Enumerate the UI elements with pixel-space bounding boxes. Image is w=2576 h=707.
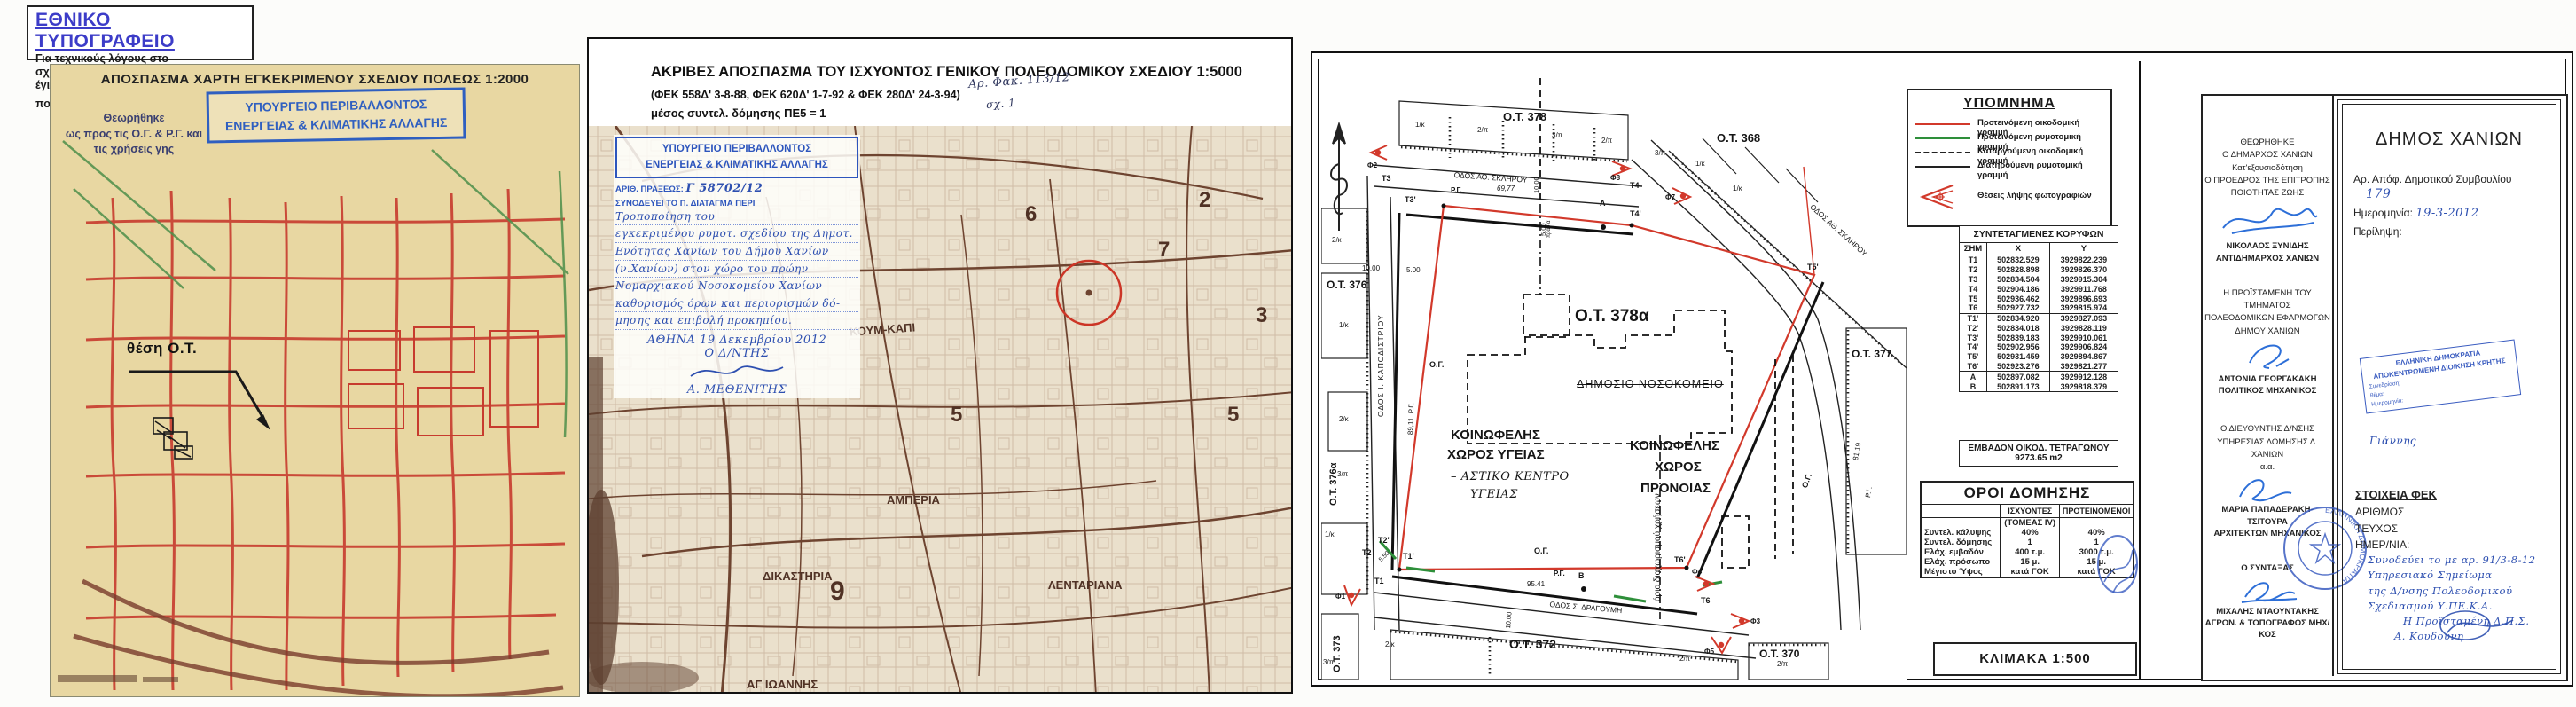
camera-icon (1917, 182, 1956, 212)
national-printing-office-box: ΕΘΝΙΚΟ ΤΥΠΟΓΡΑΦΕΙΟ Για τεχνικούς λόγους … (27, 5, 254, 60)
block-area-box: ΕΜΒΑΔΟΝ ΟΙΚΟΔ. ΤΕΤΡΑΓΩΝΟΥ 9273.65 m2 (1959, 440, 2118, 467)
municipality-box-inner: ΔΗΜΟΣ ΧΑΝΙΩΝ Αρ. Απόφ. Δημοτικού Συμβουλ… (2342, 104, 2556, 670)
table-row: Τ6'502923.2763929821.277 (1960, 362, 2118, 372)
camera-label: Φ4 (1692, 568, 1702, 576)
middle-subtitle-fek: (ΦΕΚ 558Δ' 3-8-88, ΦΕΚ 620Δ' 1-7-92 & ΦΕ… (651, 89, 960, 101)
parcel-code: 1/κ (1733, 185, 1742, 192)
table-row: Τ1502832.5293929822.239 (1960, 255, 2118, 265)
scale-box: ΚΛΙΜΑΚΑ 1:500 (1933, 642, 2137, 676)
stamp-director-role: Ο Δ/ΝΤΗΣ (615, 347, 858, 360)
date-row: Ημερομηνία: 19-3-2012 (2353, 207, 2545, 220)
legend-item: Προτεινόμενη ρυμοτομική γραμμή (1915, 131, 2103, 145)
block-label: Ο.Τ. 370 (1759, 648, 1799, 660)
dept-head-name: ΑΝΤΩΝΙΑ ΓΕΩΡΓΑΚΑΚΗ (2203, 373, 2332, 385)
dept-head-signature (2223, 340, 2312, 372)
parcel-code: 3/π (1323, 658, 1334, 666)
district-label: ΛΕΝΤΑΡΙΑΝΑ (1048, 578, 1123, 592)
printing-office-title: ΕΘΝΙΚΟ ΤΥΠΟΓΡΑΦΕΙΟ (35, 10, 245, 52)
ministry-act-stamp: ΥΠΟΥΡΓΕΙΟ ΠΕΡΙΒΑΛΛΟΝΤΟΣ ΕΝΕΡΓΕΙΑΣ & ΚΛΙΜ… (614, 135, 860, 398)
sector-number: 3 (1256, 303, 1267, 328)
panel-implementation-plan-1-500: Ο.Τ. 378 Ο.Τ. 368 Ο.Τ. 376 Ο.Τ. 376α Ο.Τ… (1311, 51, 2573, 687)
handwritten-service-note: Συνοδεύει το με αρ. 91/3-8-12 Υπηρεσιακό… (2368, 553, 2545, 645)
middle-title: ΑΚΡΙΒΕΣ ΑΠΟΣΠΑΣΜΑ ΤΟΥ ΙΣΧΥΟΝΤΟΣ ΓΕΝΙΚΟΥ … (651, 64, 1242, 81)
director-block: Ο ΔΙΕΥΘΥΝΤΗΣ Δ/ΝΣΗΣ ΥΠΗΡΕΣΙΑΣ ΔΟΜΗΣΗΣ Δ.… (2203, 423, 2332, 474)
corner-label: Τ6 (1701, 596, 1711, 605)
coords-header-row: ΣΗΜ Χ Υ (1960, 243, 2118, 255)
line-label-og: Ο.Γ. (1429, 360, 1444, 369)
director-signature (2228, 474, 2307, 504)
zone-health-handnote: – ΑΣΤΙΚΟ ΚΕΝΤΡΟ (1451, 470, 1570, 483)
zone-health-handnote: ΥΓΕΙΑΣ (1470, 488, 1518, 501)
table-row: Τ5'502931.4593929894.867 (1960, 352, 2118, 362)
corner-label: Τ3' (1405, 195, 1416, 204)
parcel-code: 3/π (1337, 470, 1348, 478)
dimension: 10.00 (1362, 264, 1380, 272)
date-value-handwritten: 19-3-2012 (2415, 207, 2478, 220)
sector-number: 6 (1025, 202, 1037, 227)
camera-label: Φ7 (1665, 193, 1675, 201)
sector-number: 7 (1158, 238, 1170, 263)
approved-note: Θεωρήθηκε ως προς τις Ο.Γ. & Ρ.Γ. και τι… (54, 111, 214, 158)
district-label: ΔΙΚΑΣΤΗΡΙΑ (763, 570, 833, 583)
blue-ink-mark (2087, 529, 2149, 600)
scanned-planning-document: ΕΘΝΙΚΟ ΤΥΠΟΓΡΑΦΕΙΟ Για τεχνικούς λόγους … (0, 0, 2576, 707)
table-row: Τ3502834.5043929915.304 (1960, 275, 2118, 285)
stamp-place-date: ΑΘΗΝΑ 19 Δεκεμβρίου 2012 (615, 334, 858, 347)
dashed-line-sample (1915, 152, 1970, 153)
legend-item: Προτεινόμενη οικοδομική γραμμή (1915, 117, 2103, 130)
parcel-code: 2/π (1679, 655, 1690, 663)
decentralized-admin-stamp: ΕΛΛΗΝΙΚΗ ΔΗΜΟΚΡΑΤΙΑ ΑΠΟΚΕΝΤΡΩΜΕΝΗ ΔΙΟΙΚΗ… (2360, 340, 2521, 414)
act-number-value: Γ 58702/12 (685, 182, 763, 195)
table-row: Τ2'502834.0183929828.119 (1960, 323, 2118, 333)
corner-label: Τ2 (1362, 548, 1372, 557)
old-hospital-label: ΔΗΜΟΣΙΟ ΝΟΣΟΚΟΜΕΙΟ (1577, 378, 1724, 390)
table-row: Τ4'502902.9563929906.824 (1960, 342, 2118, 352)
camera-label: Φ8 (1610, 174, 1620, 182)
dimension-setback-word: πρασιά (1546, 220, 1552, 238)
legend-item: Διατηρούμενη ρυμοτομική γραμμή (1915, 160, 2103, 173)
zone-health-label: ΚΟΙΝΩΦΕΛΗΣ (1451, 428, 1540, 443)
summary-label: Περίληψη: (2353, 225, 2545, 238)
coords-title: ΣΥΝΤΕΤΑΓΜΕΝΕΣ ΚΟΡΥΦΩΝ (1960, 226, 2118, 243)
plot-map: Ο.Τ. 378 Ο.Τ. 368 Ο.Τ. 376 Ο.Τ. 376α Ο.Τ… (1321, 62, 1907, 680)
corner-label: Τ5' (1807, 263, 1819, 271)
stamp-director-name: Α. ΜΕΘΕΝΙΤΗΣ (615, 383, 858, 397)
mayor-signature (2214, 201, 2321, 239)
zone-welfare-label: ΠΡΟΝΟΙΑΣ (1640, 481, 1711, 496)
legend-title: ΥΠΟΜΝΗΜΑ (1908, 96, 2110, 112)
corner-label: Α (1600, 199, 1606, 208)
corner-label: Τ2' (1378, 536, 1390, 545)
dimension: 95.41 (1527, 580, 1545, 588)
block-label: Ο.Τ. 372 (1509, 637, 1556, 651)
dept-head-block: Η ΠΡΟΪΣΤΑΜΕΝΗ ΤΟΥ ΤΜΗΜΑΤΟΣ ΠΟΛΕΟΔΟΜΙΚΩΝ … (2203, 287, 2332, 338)
signatures-column: ΘΕΩΡΗΘΗΚΕ Ο ΔΗΜΑΡΧΟΣ ΧΑΝΙΩΝ Κατ'εξουσιοδ… (2203, 96, 2332, 640)
table-row: Τ5502936.4623929896.693 (1960, 294, 2118, 303)
terms-header-row: ΙΣΧΥΟΝΤΕΣ ΠΡΟΤΕΙΝΟΜΕΝΟΙ (1922, 505, 2133, 518)
location-ot-label: θέση Ο.Τ. (127, 340, 197, 357)
block-label: Ο.Τ. 368 (1717, 131, 1760, 145)
decree-handwritten-text: Τροποποίηση του εγκεκριμένου ρυμοτ. σχεδ… (615, 208, 858, 397)
usage-boundary-label: όριο διαχωρισμού χρήσεων (1653, 493, 1663, 601)
approved-plan-map (51, 65, 579, 696)
signatures-region: ΘΕΩΡΗΘΗΚΕ Ο ΔΗΜΑΡΧΟΣ ΧΑΝΙΩΝ Κατ'εξουσιοδ… (2201, 94, 2568, 681)
dimension: 10.00 (1504, 611, 1514, 628)
legend: ΥΠΟΜΝΗΜΑ Προτεινόμενη οικοδομική γραμμή … (1907, 89, 2112, 227)
block-label: Ο.Τ. 376 (1327, 279, 1366, 291)
terms-title: ΟΡΟΙ ΔΟΜΗΣΗΣ (1922, 483, 2133, 505)
act-number-row: ΑΡΙΘ. ΠΡΑΞΕΩΣ: Γ 58702/12 (615, 182, 858, 195)
dimension: 89,11 Ρ.Γ. (1406, 403, 1415, 435)
table-row: Β502891.1733929818.379 (1960, 381, 2118, 391)
legend-camera-item: Θέσεις λήψης φωτογραφιών (1915, 182, 2103, 217)
sector-number: 5 (951, 403, 962, 428)
line-label-og: Ο.Γ. (1534, 546, 1548, 555)
block-label: Ο.Τ. 377 (1852, 348, 1891, 360)
table-row: (ΤΟΜΕΑΣ IV) (1922, 518, 2133, 529)
table-row: Τ6502927.7323929815.974 (1960, 303, 2118, 313)
camera-label: Φ5 (1704, 648, 1714, 656)
parcel-code: 2/κ (1385, 640, 1395, 648)
line-label-rg: Ρ.Γ. (1451, 186, 1462, 194)
district-label: ΑΓ ΙΩΑΝΝΗΣ (747, 678, 818, 691)
corner-label: Β (1578, 571, 1585, 580)
corner-label: Τ4' (1630, 209, 1641, 218)
zone-health-label: ΧΩΡΟΣ ΥΓΕΙΑΣ (1447, 447, 1545, 462)
parcel-code: 1/κ (1695, 160, 1705, 168)
sector-number: 2 (1199, 188, 1210, 213)
dimension: 10.00 (1532, 177, 1540, 193)
parcel-code: 2/π (1477, 126, 1488, 134)
corner-label: Τ3 (1382, 174, 1391, 183)
parcel-code: 2/π (1601, 137, 1612, 145)
ministry-stamp-box: ΥΠΟΥΡΓΕΙΟ ΠΕΡΙΒΑΛΛΟΝΤΟΣ ΕΝΕΡΓΕΙΑΣ & ΚΛΙΜ… (207, 87, 466, 143)
coords-group-ab: Α502897.0823929912.128Β502891.1733929818… (1960, 372, 2118, 391)
corner-label: Τ6' (1674, 555, 1686, 564)
fek-details-block: ΣΤΟΙΧΕΙΑ ΦΕΚ ΑΡΙΘΜΟΣ ΤΕΥΧΟΣ ΗΜΕΡ/ΝΙΑ: (2355, 486, 2437, 554)
parcel-code: 1/κ (1325, 530, 1335, 538)
author-name: ΜΙΧΑΛΗΣ ΝΤΑΟΥΝΤΑΚΗΣ (2203, 606, 2332, 617)
dimension: 69,77 (1497, 185, 1515, 192)
camera-label: Φ1 (1335, 593, 1345, 601)
building-terms-table: ΟΡΟΙ ΔΟΜΗΣΗΣ ΙΣΧΥΟΝΤΕΣ ΠΡΟΤΕΙΝΟΜΕΝΟΙ (ΤΟ… (1920, 481, 2134, 578)
note-signature (2421, 608, 2527, 643)
parcel-code: 2/κ (1332, 236, 1342, 244)
coords-group-t: Τ1502832.5293929822.239Τ2502828.89839298… (1960, 255, 2118, 314)
block-label: Ο.Τ. 373 (1332, 635, 1343, 672)
table-row: Τ4502904.1863929911.768 (1960, 284, 2118, 294)
council-decision-label: Αρ. Απόφ. Δημοτικού Συμβουλίου (2353, 173, 2545, 185)
block-area-value: 9273.65 m2 (1960, 453, 2118, 463)
street-label: ΟΔΟΣ Ι. ΚΑΠΟΔΙΣΤΡΙΟΥ (1376, 314, 1385, 417)
vertex-coordinates-table: ΣΥΝΤΕΤΑΓΜΕΝΕΣ ΚΟΡΥΦΩΝ ΣΗΜ Χ Υ Τ1502832.5… (1959, 225, 2118, 392)
council-decision-number: 179 (2366, 187, 2545, 201)
table-row: Τ1'502834.9203929827.093 (1960, 313, 2118, 323)
corner-label: Τ4 (1630, 181, 1640, 190)
left-panel-title: ΑΠΟΣΠΑΣΜΑ ΧΑΡΤΗ ΕΓΚΕΚΡΙΜΕΝΟΥ ΣΧΕΔΙΟΥ ΠΟΛ… (51, 72, 579, 87)
municipality-box: ΔΗΜΟΣ ΧΑΝΙΩΝ Αρ. Απόφ. Δημοτικού Συμβουλ… (2337, 99, 2561, 674)
parcel-code: 2/π (1777, 660, 1788, 668)
table-row: Τ2502828.8983929826.370 (1960, 265, 2118, 275)
municipality-title: ΔΗΜΟΣ ΧΑΝΙΩΝ (2353, 130, 2545, 150)
mayor-name: ΝΙΚΟΛΑΟΣ ΞΥΝΙΔΗΣ (2203, 240, 2332, 252)
green-line-sample (1915, 137, 1970, 139)
director-signature (684, 360, 790, 383)
solid-line-sample (1915, 166, 1970, 168)
table-row: Α502897.0823929912.128 (1960, 372, 2118, 381)
panel-approved-plan-1-2000: ΑΠΟΣΠΑΣΜΑ ΧΑΡΤΗ ΕΓΚΕΚΡΙΜΕΝΟΥ ΣΧΕΔΙΟΥ ΠΟΛ… (50, 64, 580, 697)
red-line-sample (1915, 123, 1970, 125)
sector-number: 9 (830, 577, 845, 607)
parcel-code: 1/κ (1339, 321, 1349, 329)
subject-block-label: Ο.Τ. 378α (1575, 307, 1649, 326)
district-label: ΑΜΠΕΡΙΑ (887, 493, 940, 507)
legend-item: Καταργούμενη οικοδομική γραμμή (1915, 145, 2103, 159)
corner-label: Τ1' (1403, 552, 1414, 561)
corner-label: Τ1 (1374, 577, 1384, 585)
ministry-stamp-header: ΥΠΟΥΡΓΕΙΟ ΠΕΡΙΒΑΛΛΟΝΤΟΣ ΕΝΕΡΓΕΙΑΣ & ΚΛΙΜ… (615, 137, 858, 178)
panel-general-plan-1-5000: ΑΚΡΙΒΕΣ ΑΠΟΣΠΑΣΜΑ ΤΟΥ ΙΣΧΥΟΝΤΟΣ ΓΕΝΙΚΟΥ … (587, 37, 1293, 694)
approval-block: ΘΕΩΡΗΘΗΚΕ Ο ΔΗΜΑΡΧΟΣ ΧΑΝΙΩΝ Κατ'εξουσιοδ… (2203, 137, 2332, 200)
coords-group-t-prime: Τ1'502834.9203929827.093Τ2'502834.018392… (1960, 313, 2118, 372)
zone-welfare-label: ΧΩΡΟΣ (1655, 460, 1702, 475)
block-label: Ο.Τ. 378 (1503, 110, 1546, 123)
parcel-code: 3/π (1552, 131, 1562, 139)
stamp-signer-handwritten: Γιάννης (2369, 435, 2416, 447)
line-label-rg: Ρ.Γ. (1554, 570, 1565, 577)
sheet-ref-handwritten: σχ. 1 (986, 97, 1016, 111)
block-label: Ο.Τ. 376α (1328, 463, 1339, 506)
table-row: Τ3'502839.1833929910.061 (1960, 333, 2118, 342)
parcel-code: 3/π (1655, 149, 1665, 157)
middle-subtitle-ratio: μέσος συντελ. δόμησης ΠΕ5 = 1 (651, 106, 826, 120)
sector-number: 5 (1227, 403, 1239, 428)
zone-welfare-label: ΚΟΙΝΩΦΕΛΗΣ (1630, 438, 1719, 453)
parcel-code: 2/κ (1339, 415, 1349, 423)
decree-label: ΣΥΝΟΔΕΥΕΙ ΤΟ Π. ΔΙΑΤΑΓΜΑ ΠΕΡΙ (615, 199, 858, 208)
camera-label: Φ3 (1750, 617, 1760, 625)
dimension-setback: 5.00 (1406, 266, 1421, 274)
parcel-code: 1/κ (1415, 121, 1425, 129)
camera-label: Φ2 (1367, 161, 1377, 169)
